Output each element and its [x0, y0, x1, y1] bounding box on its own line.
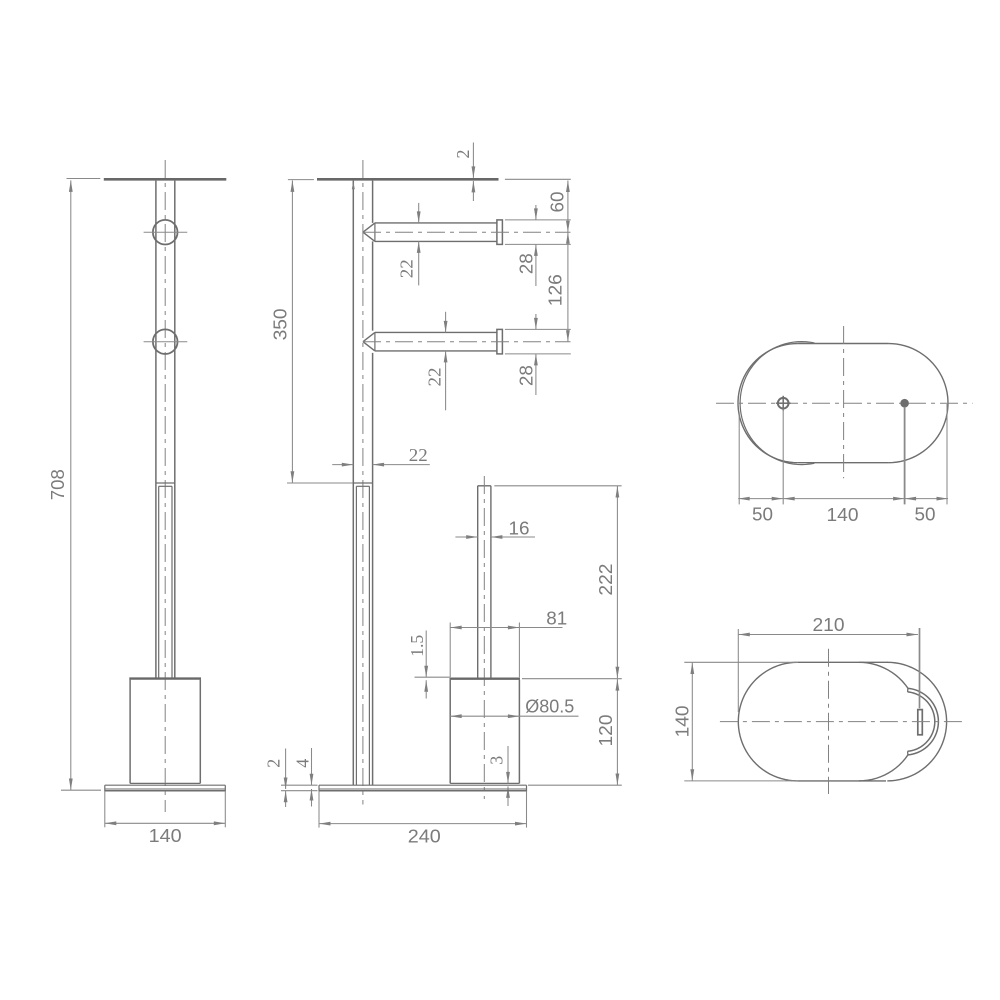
svg-text:4: 4 [292, 759, 312, 768]
svg-text:Ø80.5: Ø80.5 [525, 695, 574, 716]
svg-text:2: 2 [263, 759, 283, 768]
svg-text:22: 22 [397, 259, 417, 278]
svg-text:2: 2 [453, 150, 473, 159]
svg-text:210: 210 [813, 614, 845, 635]
svg-text:350: 350 [269, 308, 290, 340]
svg-text:22: 22 [424, 368, 444, 387]
svg-text:3: 3 [486, 756, 506, 765]
svg-text:16: 16 [509, 517, 530, 538]
svg-text:22: 22 [409, 445, 428, 465]
svg-text:81: 81 [546, 608, 567, 629]
svg-text:140: 140 [149, 825, 182, 846]
svg-text:28: 28 [516, 365, 537, 386]
svg-text:140: 140 [827, 504, 859, 525]
svg-text:120: 120 [595, 715, 616, 747]
svg-text:1.5: 1.5 [407, 635, 427, 657]
svg-text:140: 140 [671, 705, 692, 737]
svg-text:60: 60 [547, 192, 568, 213]
svg-text:240: 240 [408, 825, 441, 846]
svg-text:28: 28 [516, 253, 537, 274]
svg-text:50: 50 [752, 503, 773, 524]
svg-text:126: 126 [544, 274, 565, 306]
svg-text:50: 50 [915, 503, 936, 524]
svg-text:708: 708 [47, 469, 68, 500]
svg-text:222: 222 [595, 564, 616, 596]
